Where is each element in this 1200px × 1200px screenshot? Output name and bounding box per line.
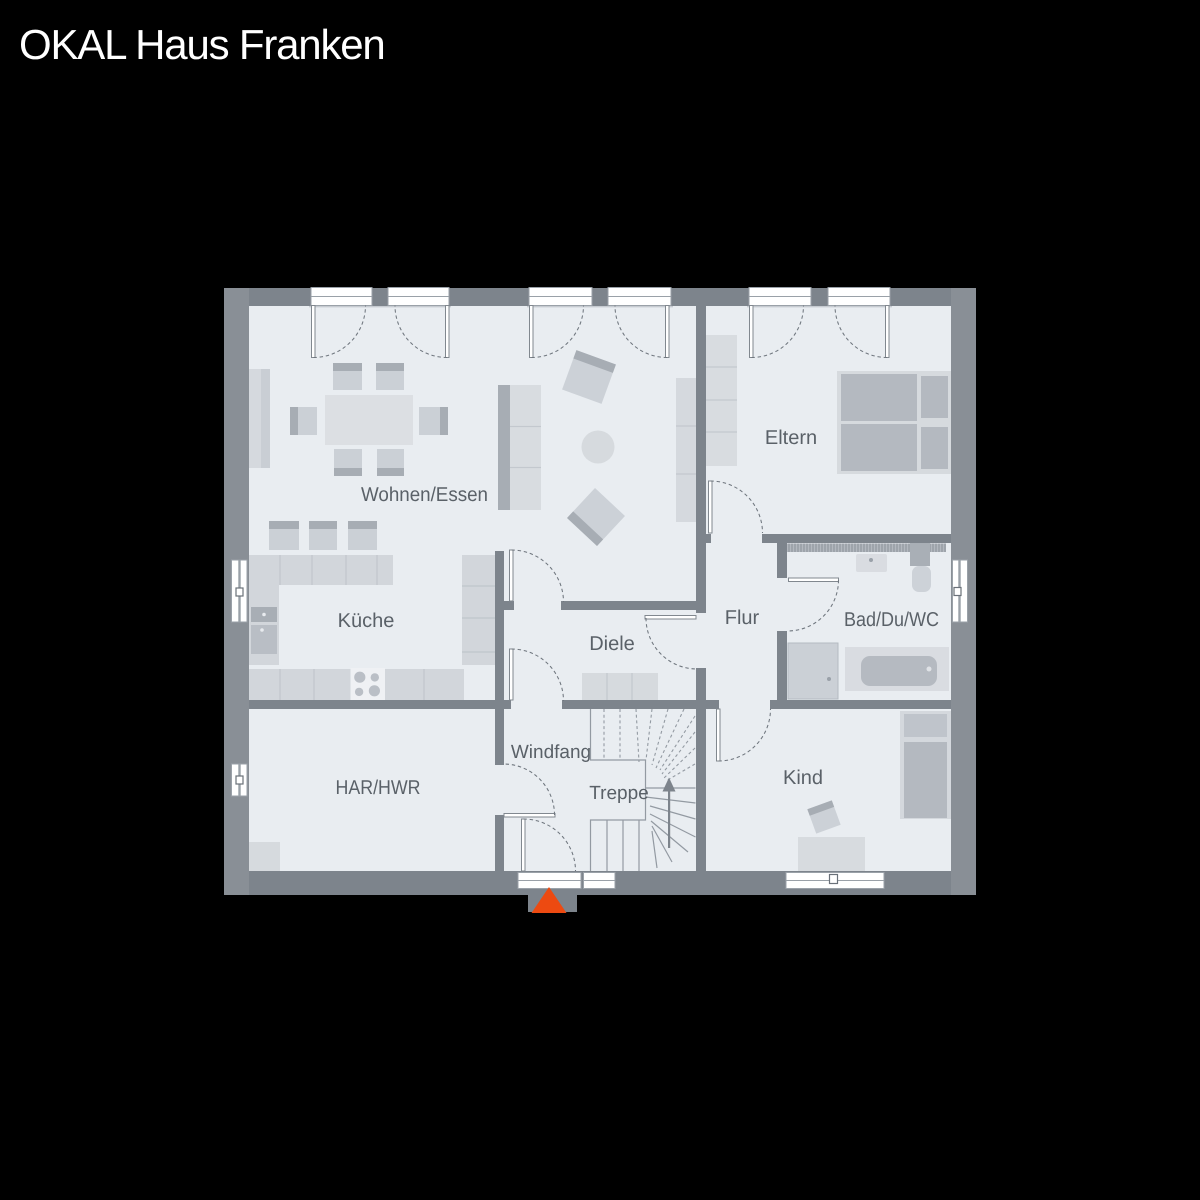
svg-text:Bad/Du/WC: Bad/Du/WC	[844, 609, 939, 631]
svg-text:Flur: Flur	[725, 607, 760, 629]
svg-text:Treppe: Treppe	[589, 783, 649, 804]
svg-text:Windfang: Windfang	[511, 742, 591, 763]
svg-text:Diele: Diele	[589, 633, 635, 655]
svg-text:HAR/HWR: HAR/HWR	[336, 777, 421, 799]
svg-text:Eltern: Eltern	[765, 427, 817, 449]
svg-text:Kind: Kind	[783, 767, 823, 789]
svg-text:Küche: Küche	[338, 610, 395, 632]
svg-text:Wohnen/Essen: Wohnen/Essen	[361, 484, 488, 506]
